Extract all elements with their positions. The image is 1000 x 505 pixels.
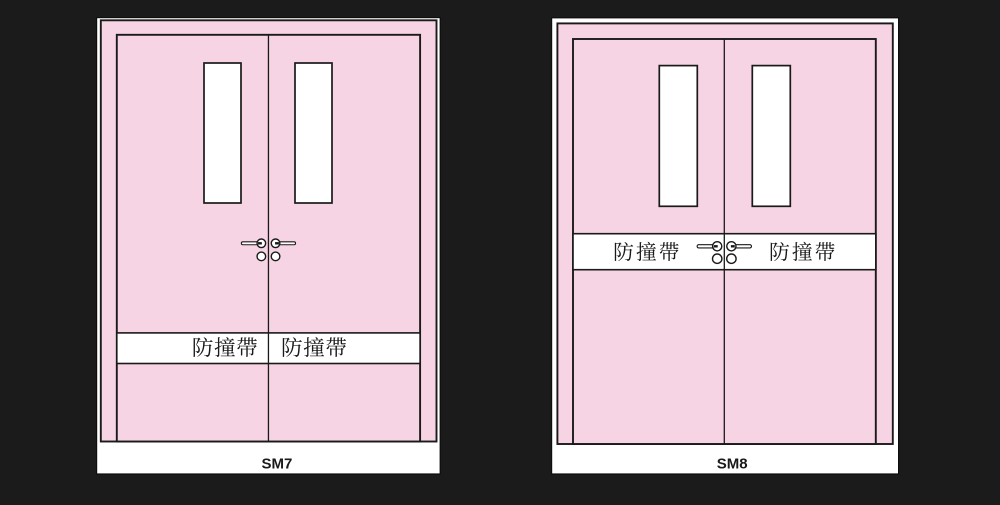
svg-text:SM7: SM7 xyxy=(261,455,292,472)
svg-text:SM8: SM8 xyxy=(717,455,748,472)
